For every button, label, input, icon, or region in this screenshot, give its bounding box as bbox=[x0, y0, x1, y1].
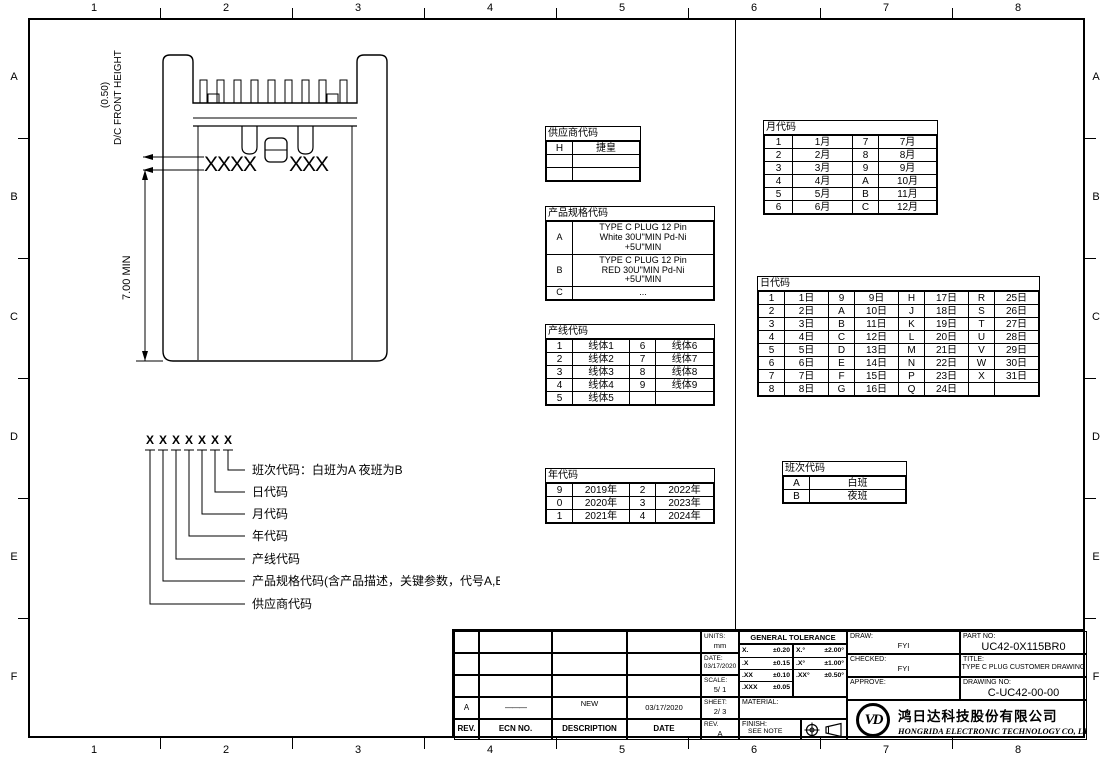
table-cell: 线体2 bbox=[573, 353, 630, 366]
table-grid: ATYPE C PLUG 12 Pin White 30U"MIN Pd-Ni … bbox=[546, 221, 714, 300]
grid-row-label: A bbox=[6, 71, 22, 83]
table-row: 5线体5 bbox=[547, 392, 714, 405]
table-cell: 1 bbox=[759, 292, 785, 305]
table-row: 92019年22022年 bbox=[547, 484, 714, 497]
table-cell: 8日 bbox=[785, 383, 829, 396]
grid-col-label: 8 bbox=[1008, 744, 1028, 756]
table-row: .XX±0.10 bbox=[740, 669, 792, 681]
table-cell: 9 bbox=[630, 379, 656, 392]
supplier-code-table: 供应商代码 H捷皇 bbox=[545, 126, 641, 182]
table-cell: 12日 bbox=[855, 331, 899, 344]
table-cell: 7 bbox=[853, 136, 879, 149]
table-cell: V bbox=[969, 344, 995, 357]
checked-cell: CHECKED: FYI bbox=[847, 654, 960, 677]
draw-value: FYI bbox=[848, 641, 959, 650]
revision-empty-cell bbox=[627, 653, 701, 675]
table-title: 日代码 bbox=[758, 277, 1039, 291]
code-digit: X bbox=[146, 433, 154, 447]
table-cell: 19日 bbox=[925, 318, 969, 331]
year-code-table: 年代码 92019年22022年02020年32023年12021年42024年 bbox=[545, 468, 715, 524]
grid-col-label: 5 bbox=[612, 744, 632, 756]
table-cell: T bbox=[969, 318, 995, 331]
table-cell: 12月 bbox=[879, 201, 937, 214]
table-cell: 13日 bbox=[855, 344, 899, 357]
grid-col-label: 7 bbox=[876, 2, 896, 14]
table-row: B夜班 bbox=[784, 490, 906, 503]
grid-tick bbox=[424, 738, 425, 749]
checked-label: CHECKED: bbox=[848, 655, 959, 663]
grid-row-label: B bbox=[1088, 191, 1104, 203]
table-cell: E bbox=[829, 357, 855, 370]
solder-tab bbox=[298, 126, 313, 154]
date-cell: DATE: 03/17/2020 bbox=[701, 653, 739, 675]
table-cell: 捷皇 bbox=[573, 142, 640, 155]
scale-value: 5/ 1 bbox=[702, 685, 738, 694]
grid-col-label: 1 bbox=[84, 2, 104, 14]
table-grid: 92019年22022年02020年32023年12021年42024年 bbox=[546, 483, 714, 523]
tolerance-angular-table: X.°±2.00°.X°±1.00°.XX°±0.50° bbox=[794, 645, 846, 681]
table-cell: M bbox=[899, 344, 925, 357]
approve-label: APPROVE: bbox=[848, 678, 959, 686]
marking-text-left: XXXX bbox=[204, 153, 257, 176]
table-cell: 23日 bbox=[925, 370, 969, 383]
table-cell: D bbox=[829, 344, 855, 357]
table-cell: 5 bbox=[547, 392, 573, 405]
table-cell: 1 bbox=[765, 136, 793, 149]
table-cell: 4月 bbox=[793, 175, 853, 188]
grid-row-label: D bbox=[1088, 431, 1104, 443]
table-cell: ±2.00° bbox=[816, 645, 846, 657]
table-cell: 28日 bbox=[995, 331, 1039, 344]
table-cell: 9 bbox=[829, 292, 855, 305]
table-row: 3线体38线体8 bbox=[547, 366, 714, 379]
finish-cell: FINISH: SEE NOTE bbox=[739, 719, 801, 740]
grid-tick bbox=[952, 8, 953, 18]
body-dim-text: 7.00 MIN bbox=[121, 255, 133, 300]
grid-tick bbox=[1085, 258, 1096, 259]
tolerance-linear-box: X.±0.20.X±0.15.XX±0.10.XXX±0.05 bbox=[739, 644, 793, 697]
table-cell: C bbox=[547, 287, 573, 300]
grid-row-label: E bbox=[1088, 551, 1104, 563]
table-cell: N bbox=[899, 357, 925, 370]
table-cell bbox=[656, 392, 714, 405]
grid-tick bbox=[18, 618, 28, 619]
table-cell: 2021年 bbox=[573, 510, 630, 523]
rev-value: A bbox=[702, 729, 738, 738]
marking-text-right: XXX bbox=[289, 153, 329, 176]
tolerance-angular-box: X.°±2.00°.X°±1.00°.XX°±0.50° bbox=[793, 644, 847, 697]
table-grid: 1线体16线体62线体27线体73线体38线体84线体49线体95线体5 bbox=[546, 339, 714, 405]
date-value: 03/17/2020 bbox=[702, 663, 738, 670]
table-cell: 8 bbox=[759, 383, 785, 396]
table-cell: .XX° bbox=[794, 669, 816, 681]
table-cell: 14日 bbox=[855, 357, 899, 370]
table-row: 44日C12日L20日U28日 bbox=[759, 331, 1039, 344]
table-cell: C bbox=[853, 201, 879, 214]
table-cell: 3 bbox=[759, 318, 785, 331]
legend-label: 班次代码：白班为A 夜班为B bbox=[252, 462, 403, 477]
table-cell: 2023年 bbox=[656, 497, 714, 510]
table-cell: 17日 bbox=[925, 292, 969, 305]
table-cell: 3 bbox=[765, 162, 793, 175]
grid-tick bbox=[1085, 498, 1096, 499]
code-digit: X bbox=[159, 433, 167, 447]
table-cell: ... bbox=[573, 287, 714, 300]
table-cell: R bbox=[969, 292, 995, 305]
approve-cell: APPROVE: bbox=[847, 677, 960, 700]
scale-cell: SCALE: 5/ 1 bbox=[701, 675, 739, 697]
table-cell: C bbox=[829, 331, 855, 344]
grid-tick bbox=[1085, 618, 1096, 619]
drawing-no-label: DRAWING NO: bbox=[961, 678, 1086, 686]
table-cell: 25日 bbox=[995, 292, 1039, 305]
legend-label: 供应商代码 bbox=[252, 596, 312, 611]
grid-tick bbox=[18, 138, 28, 139]
draw-label: DRAW: bbox=[848, 632, 959, 640]
table-cell: 4日 bbox=[785, 331, 829, 344]
table-row: 11日99日H17日R25日 bbox=[759, 292, 1039, 305]
finish-value: SEE NOTE bbox=[740, 728, 800, 735]
table-cell: ±0.10 bbox=[762, 669, 792, 681]
grid-col-label: 3 bbox=[348, 744, 368, 756]
table-cell: A bbox=[829, 305, 855, 318]
table-title: 供应商代码 bbox=[546, 127, 640, 141]
table-cell: 夜班 bbox=[810, 490, 906, 503]
table-cell: 15日 bbox=[855, 370, 899, 383]
revision-empty-cell bbox=[454, 631, 479, 653]
table-cell: TYPE C PLUG 12 Pin RED 30U"MIN Pd-Ni +5U… bbox=[573, 254, 714, 287]
table-cell: 1月 bbox=[793, 136, 853, 149]
code-digit: X bbox=[211, 433, 219, 447]
table-cell: 线体8 bbox=[656, 366, 714, 379]
table-row: X.±0.20 bbox=[740, 645, 792, 657]
table-cell: ±0.05 bbox=[762, 681, 792, 693]
lot-code-legend: X X X X X X X 班次代码：白班为A 夜班为B 日代码 月代码 年代码… bbox=[140, 428, 500, 618]
table-cell: ±0.50° bbox=[816, 669, 846, 681]
table-cell: 30日 bbox=[995, 357, 1039, 370]
table-cell: 5日 bbox=[785, 344, 829, 357]
table-cell: 10日 bbox=[855, 305, 899, 318]
table-cell: 2 bbox=[630, 484, 656, 497]
revision-rev-cell: A bbox=[454, 697, 479, 719]
table-cell: X.° bbox=[794, 645, 816, 657]
revision-empty-cell bbox=[552, 653, 627, 675]
table-cell: 11日 bbox=[855, 318, 899, 331]
table-title: 产线代码 bbox=[546, 325, 714, 339]
table-cell: ±0.15 bbox=[762, 657, 792, 669]
table-cell: 21日 bbox=[925, 344, 969, 357]
scale-label: SCALE: bbox=[702, 676, 738, 684]
rev-label: REV. bbox=[702, 720, 738, 728]
table-cell: 16日 bbox=[855, 383, 899, 396]
drawing-title-cell: TITLE: TYPE C PLUG CUSTOMER DRAWING bbox=[960, 654, 1087, 677]
code-digit: X bbox=[198, 433, 206, 447]
revision-empty-cell bbox=[627, 675, 701, 697]
projection-symbol-cell bbox=[801, 719, 847, 740]
grid-tick bbox=[1085, 378, 1096, 379]
company-logo-icon: VD bbox=[856, 703, 890, 737]
table-row: C... bbox=[547, 287, 714, 300]
month-code-table: 月代码 11月77月22月88月33月99月44月A10月55月B11月66月C… bbox=[763, 120, 938, 215]
grid-row-label: C bbox=[1088, 311, 1104, 323]
table-cell: 27日 bbox=[995, 318, 1039, 331]
table-cell: A bbox=[853, 175, 879, 188]
table-title: 产品规格代码 bbox=[546, 207, 714, 221]
grid-col-label: 8 bbox=[1008, 2, 1028, 14]
table-cell: 7日 bbox=[785, 370, 829, 383]
table-row: 33月99月 bbox=[765, 162, 937, 175]
grid-col-label: 3 bbox=[348, 2, 368, 14]
revision-empty-cell bbox=[454, 675, 479, 697]
table-cell: 24日 bbox=[925, 383, 969, 396]
units-cell: UNITS: mm bbox=[701, 631, 739, 653]
table-cell: 2 bbox=[547, 353, 573, 366]
grid-col-label: 1 bbox=[84, 744, 104, 756]
table-title: 月代码 bbox=[764, 121, 937, 135]
table-row bbox=[547, 168, 640, 181]
table-row: 66日E14日N22日W30日 bbox=[759, 357, 1039, 370]
table-grid: A白班B夜班 bbox=[783, 476, 906, 503]
grid-tick bbox=[18, 378, 28, 379]
revision-empty-cell bbox=[627, 631, 701, 653]
table-cell: 20日 bbox=[925, 331, 969, 344]
table-cell: 29日 bbox=[995, 344, 1039, 357]
table-cell: ±1.00° bbox=[816, 657, 846, 669]
table-cell: 线体9 bbox=[656, 379, 714, 392]
drawing-title-value: TYPE C PLUG CUSTOMER DRAWING bbox=[961, 664, 1086, 671]
revision-empty-cell bbox=[552, 631, 627, 653]
grid-col-label: 2 bbox=[216, 744, 236, 756]
table-cell: 线体1 bbox=[573, 340, 630, 353]
table-cell: L bbox=[899, 331, 925, 344]
sheet-cell: SHEET: 2/ 3 bbox=[701, 697, 739, 719]
legend-label: 产线代码 bbox=[252, 552, 300, 566]
table-row bbox=[547, 155, 640, 168]
table-row: .X±0.15 bbox=[740, 657, 792, 669]
legend-label: 年代码 bbox=[252, 529, 288, 543]
table-row: ATYPE C PLUG 12 Pin White 30U"MIN Pd-Ni … bbox=[547, 222, 714, 255]
contact-pins bbox=[200, 80, 347, 103]
table-cell: 线体4 bbox=[573, 379, 630, 392]
grid-row-label: D bbox=[6, 431, 22, 443]
grid-row-label: F bbox=[1088, 671, 1104, 683]
legend-label: 月代码 bbox=[252, 507, 288, 521]
shift-code-table: 班次代码 A白班B夜班 bbox=[782, 461, 907, 504]
table-cell: 11月 bbox=[879, 188, 937, 201]
material-cell: MATERIAL: bbox=[739, 697, 847, 719]
table-row: .XXX±0.05 bbox=[740, 681, 792, 693]
table-cell: 1日 bbox=[785, 292, 829, 305]
code-digit: X bbox=[185, 433, 193, 447]
grid-row-label: E bbox=[6, 551, 22, 563]
table-row: 55月B11月 bbox=[765, 188, 937, 201]
revision-empty-cell bbox=[552, 675, 627, 697]
table-cell: 5 bbox=[759, 344, 785, 357]
table-cell bbox=[573, 155, 640, 168]
grid-col-label: 4 bbox=[480, 744, 500, 756]
revision-ecn-cell: ——— bbox=[479, 697, 552, 719]
units-label: UNITS: bbox=[702, 632, 738, 640]
table-cell: 4 bbox=[765, 175, 793, 188]
table-cell: 7 bbox=[630, 353, 656, 366]
table-row: 88日G16日Q24日 bbox=[759, 383, 1039, 396]
grid-col-label: 2 bbox=[216, 2, 236, 14]
table-cell: U bbox=[969, 331, 995, 344]
table-cell: 6 bbox=[765, 201, 793, 214]
units-value: mm bbox=[702, 641, 738, 650]
table-cell: 6月 bbox=[793, 201, 853, 214]
grid-tick bbox=[160, 738, 161, 749]
table-row: 66月C12月 bbox=[765, 201, 937, 214]
table-row: X.°±2.00° bbox=[794, 645, 846, 657]
revision-header-ecn: ECN NO. bbox=[479, 719, 552, 740]
table-cell: 2022年 bbox=[656, 484, 714, 497]
legend-label: 日代码 bbox=[252, 485, 288, 499]
company-name-en: HONGRIDA ELECTRONIC TECHNOLOGY CO, LTD. bbox=[898, 726, 1087, 736]
day-code-table: 日代码 11日99日H17日R25日22日A10日J18日S26日33日B11日… bbox=[757, 276, 1040, 397]
revision-header-description: DESCRIPTION bbox=[552, 719, 627, 740]
table-cell: 4 bbox=[547, 379, 573, 392]
table-cell: 2020年 bbox=[573, 497, 630, 510]
revision-date-cell: 03/17/2020 bbox=[627, 697, 701, 719]
table-cell: 31日 bbox=[995, 370, 1039, 383]
table-cell: X bbox=[969, 370, 995, 383]
table-cell: 3 bbox=[630, 497, 656, 510]
table-cell: B bbox=[547, 254, 573, 287]
table-cell bbox=[547, 155, 573, 168]
grid-row-label: B bbox=[6, 191, 22, 203]
table-row: 44月A10月 bbox=[765, 175, 937, 188]
table-row: .X°±1.00° bbox=[794, 657, 846, 669]
drawing-no-cell: DRAWING NO: C-UC42-00-00 bbox=[960, 677, 1087, 700]
grid-col-label: 7 bbox=[876, 744, 896, 756]
solder-tab bbox=[242, 126, 257, 154]
table-cell bbox=[573, 168, 640, 181]
production-line-code-table: 产线代码 1线体16线体62线体27线体73线体38线体84线体49线体95线体… bbox=[545, 324, 715, 406]
table-cell: 5月 bbox=[793, 188, 853, 201]
table-cell: 18日 bbox=[925, 305, 969, 318]
table-cell: .XXX bbox=[740, 681, 762, 693]
grid-tick bbox=[18, 258, 28, 259]
table-row: 12021年42024年 bbox=[547, 510, 714, 523]
company-cell: VD 鸿日达科技股份有限公司 HONGRIDA ELECTRONIC TECHN… bbox=[847, 700, 1087, 740]
drawing-sheet: 1 2 3 4 5 6 7 8 1 2 3 4 5 6 7 8 A B C D … bbox=[0, 0, 1108, 764]
table-cell: H bbox=[547, 142, 573, 155]
table-row: 33日B11日K19日T27日 bbox=[759, 318, 1039, 331]
table-cell: 3日 bbox=[785, 318, 829, 331]
table-grid: 11日99日H17日R25日22日A10日J18日S26日33日B11日K19日… bbox=[758, 291, 1039, 396]
table-cell: 6 bbox=[630, 340, 656, 353]
table-row: 11月77月 bbox=[765, 136, 937, 149]
table-cell: 8 bbox=[853, 149, 879, 162]
table-row: 22月88月 bbox=[765, 149, 937, 162]
table-cell: S bbox=[969, 305, 995, 318]
revision-empty-cell bbox=[479, 675, 552, 697]
table-title: 年代码 bbox=[546, 469, 714, 483]
grid-tick bbox=[820, 8, 821, 18]
company-names: 鸿日达科技股份有限公司 HONGRIDA ELECTRONIC TECHNOLO… bbox=[898, 705, 1087, 736]
table-cell: 9 bbox=[547, 484, 573, 497]
code-digit: X bbox=[172, 433, 180, 447]
table-cell: 9月 bbox=[879, 162, 937, 175]
table-row: 77日F15日P23日X31日 bbox=[759, 370, 1039, 383]
part-no-label: PART NO: bbox=[961, 632, 1086, 640]
table-cell: 1 bbox=[547, 510, 573, 523]
table-cell: 白班 bbox=[810, 477, 906, 490]
table-cell: F bbox=[829, 370, 855, 383]
table-row: .XX°±0.50° bbox=[794, 669, 846, 681]
table-cell: 8 bbox=[630, 366, 656, 379]
grid-tick bbox=[688, 8, 689, 18]
revision-header-date: DATE bbox=[627, 719, 701, 740]
table-row: 1线体16线体6 bbox=[547, 340, 714, 353]
table-row: H捷皇 bbox=[547, 142, 640, 155]
revision-empty-cell bbox=[479, 653, 552, 675]
grid-tick bbox=[292, 8, 293, 18]
legend-label: 产品规格代码(含产品描述，关键参数，代号A,B,C等) bbox=[252, 573, 500, 588]
table-cell: 6日 bbox=[785, 357, 829, 370]
table-cell: 0 bbox=[547, 497, 573, 510]
table-cell: 1 bbox=[547, 340, 573, 353]
table-cell: 6 bbox=[759, 357, 785, 370]
table-cell: B bbox=[853, 188, 879, 201]
dimension-arrows bbox=[142, 154, 153, 361]
table-cell: 22日 bbox=[925, 357, 969, 370]
table-cell: B bbox=[829, 318, 855, 331]
table-cell: 线体5 bbox=[573, 392, 630, 405]
rev-cell: REV. A bbox=[701, 719, 739, 740]
product-spec-code-table: 产品规格代码 ATYPE C PLUG 12 Pin White 30U"MIN… bbox=[545, 206, 715, 301]
connector-drawing: XXXX XXX (0.50) D/C FRONT HEIGHT 7.00 MI… bbox=[90, 48, 420, 373]
front-height-label-text: D/C FRONT HEIGHT bbox=[113, 50, 124, 145]
code-digits: X X X X X X X bbox=[146, 433, 232, 447]
table-grid: H捷皇 bbox=[546, 141, 640, 181]
table-cell: .X bbox=[740, 657, 762, 669]
table-cell: 2月 bbox=[793, 149, 853, 162]
table-cell bbox=[547, 168, 573, 181]
table-cell bbox=[969, 383, 995, 396]
sheet-value: 2/ 3 bbox=[702, 707, 738, 716]
table-row: 4线体49线体9 bbox=[547, 379, 714, 392]
grid-col-label: 6 bbox=[744, 744, 764, 756]
grid-tick bbox=[18, 498, 28, 499]
table-row: 55日D13日M21日V29日 bbox=[759, 344, 1039, 357]
table-cell: 7 bbox=[759, 370, 785, 383]
grid-tick bbox=[160, 8, 161, 18]
table-cell: G bbox=[829, 383, 855, 396]
table-cell: 7月 bbox=[879, 136, 937, 149]
table-cell: 2019年 bbox=[573, 484, 630, 497]
table-cell: K bbox=[899, 318, 925, 331]
zone-divider-line bbox=[735, 18, 736, 629]
table-cell: TYPE C PLUG 12 Pin White 30U"MIN Pd-Ni +… bbox=[573, 222, 714, 255]
table-cell: 2 bbox=[765, 149, 793, 162]
table-title: 班次代码 bbox=[783, 462, 906, 476]
table-cell: 10月 bbox=[879, 175, 937, 188]
table-cell: 3月 bbox=[793, 162, 853, 175]
revision-empty-cell bbox=[479, 631, 552, 653]
revision-description-cell: NEW bbox=[552, 697, 627, 719]
revision-empty-cell bbox=[454, 653, 479, 675]
draw-cell: DRAW: FYI bbox=[847, 631, 960, 654]
part-no-value: UC42-0X115BR0 bbox=[961, 641, 1086, 653]
table-cell: 9日 bbox=[855, 292, 899, 305]
table-cell: X. bbox=[740, 645, 762, 657]
sheet-label: SHEET: bbox=[702, 698, 738, 706]
legend-leader-lines bbox=[145, 450, 245, 604]
table-cell: P bbox=[899, 370, 925, 383]
table-cell: 2 bbox=[759, 305, 785, 318]
